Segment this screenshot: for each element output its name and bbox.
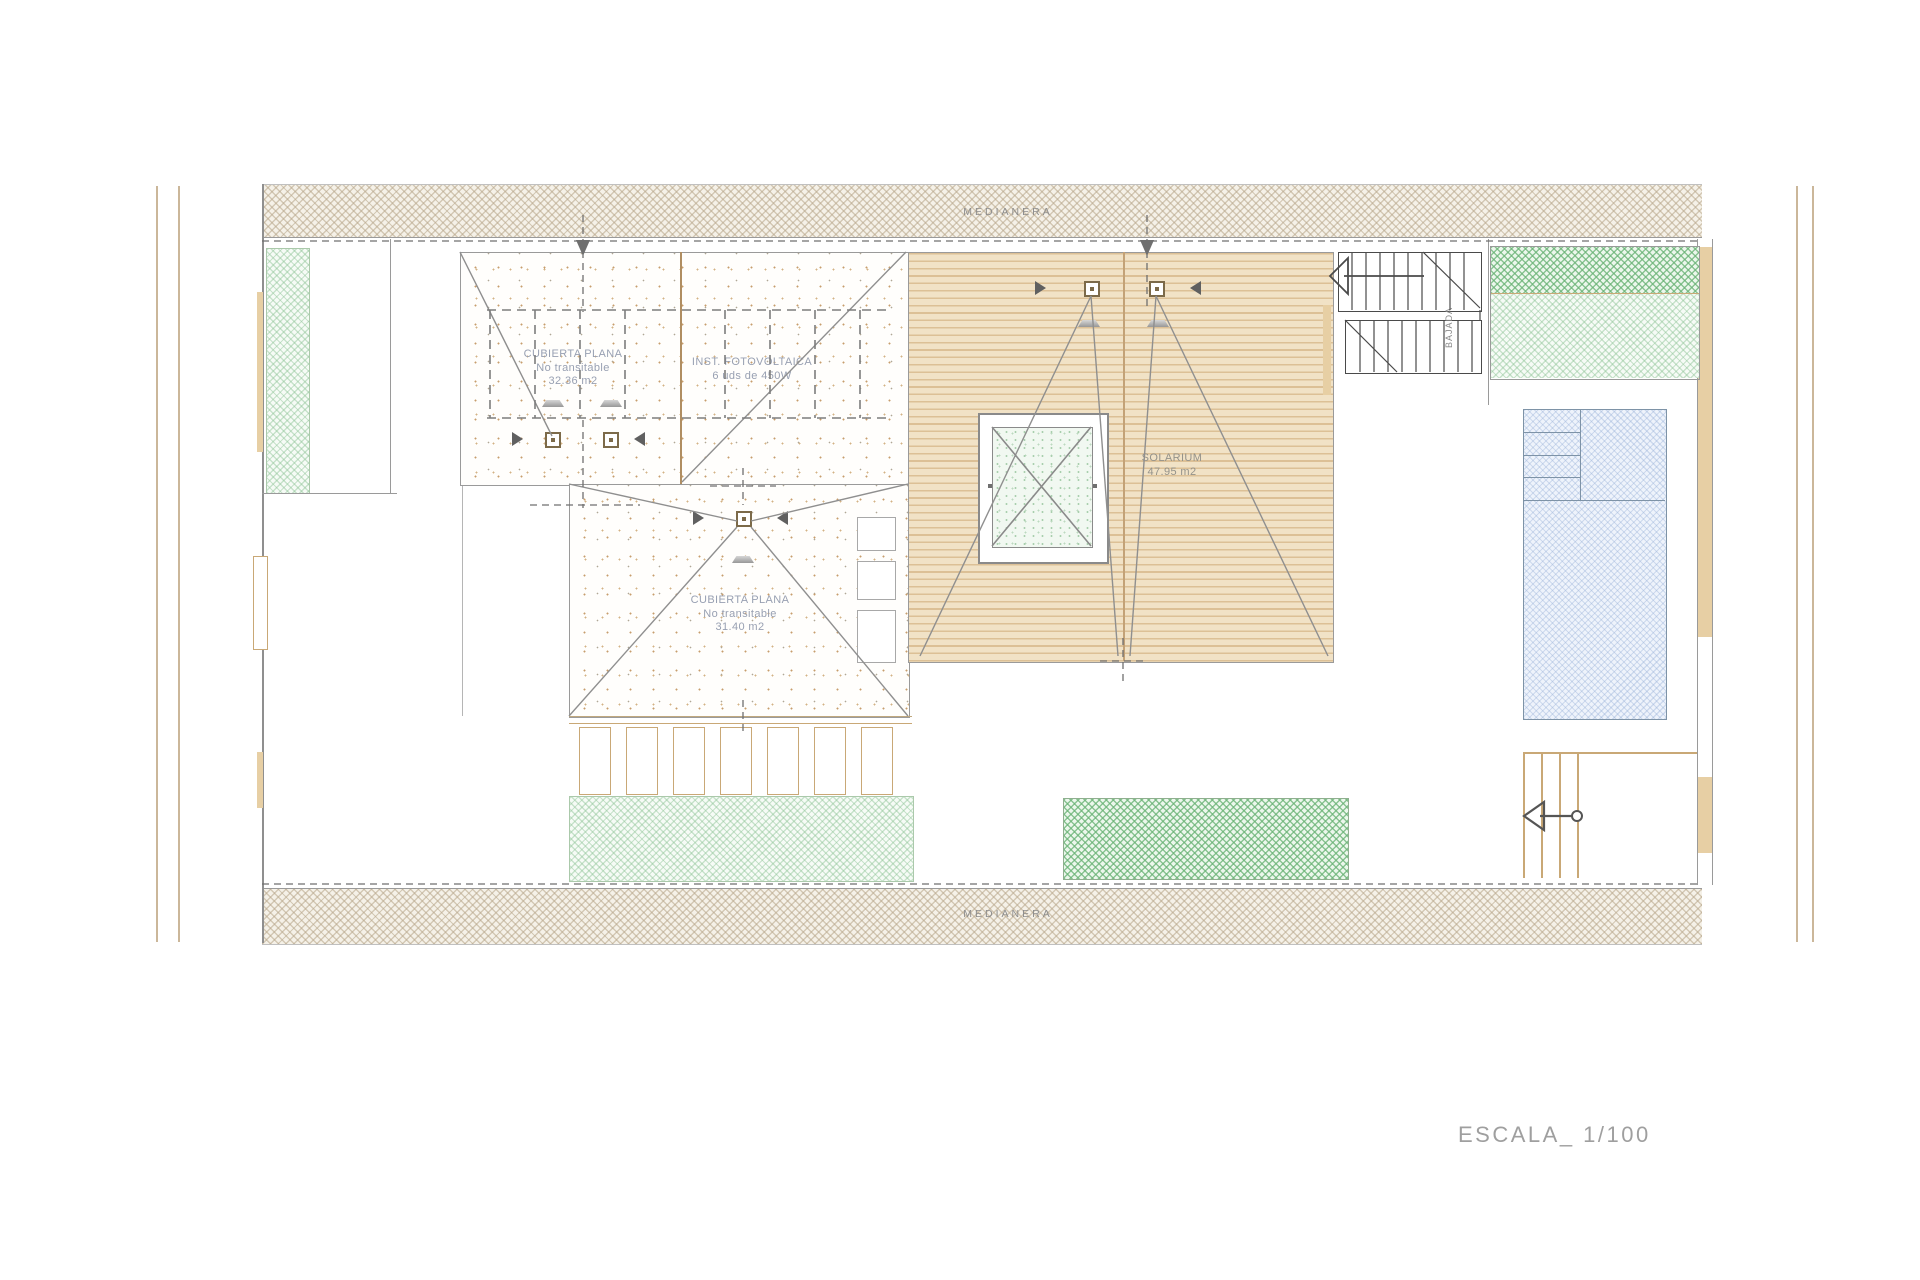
roof-a-drain-arrow-left-icon <box>634 432 645 446</box>
solarium-drain-arrow-left-icon <box>1190 281 1201 295</box>
left-guide-line-inner <box>178 186 180 942</box>
pool-step-side <box>1580 409 1581 500</box>
roof-b-drain-box-icon <box>736 511 752 527</box>
pool-shallow-line <box>1523 500 1665 501</box>
terrace-step-line <box>262 493 397 494</box>
pergola-slat <box>767 727 799 795</box>
pool-step-1 <box>1523 432 1580 433</box>
right-guide-line-inner <box>1796 186 1798 942</box>
party-wall-label-bottom: MEDIANERA <box>908 908 1108 920</box>
right-guide-line-outer <box>1812 186 1814 942</box>
pergola-slat <box>720 727 752 795</box>
pv-label: INST. FOTOVOLTAICA 6 uds de 450W <box>672 356 832 383</box>
ext-stair-tread-3 <box>1559 752 1561 878</box>
roof-a-label-line3: 32.36 m2 <box>493 375 653 389</box>
stair-direction-note: BAJADA <box>1444 307 1454 348</box>
party-wall-label-top: MEDIANERA <box>908 206 1108 218</box>
roof-a-label-line1: CUBIERTA PLANA <box>493 348 653 362</box>
pv-label-line2: 6 uds de 450W <box>672 370 832 384</box>
roof-b-vent-shaft-1 <box>857 517 896 551</box>
ext-stair-top-edge <box>1523 752 1697 754</box>
roof-b-drain-arrow-right-icon <box>693 511 704 525</box>
garden-bed-top-right <box>1490 246 1700 380</box>
right-wall-tan-segment-2 <box>1698 777 1712 853</box>
plot-left-wall-fill-1 <box>257 292 263 452</box>
garden-bed-dense-band <box>1491 247 1699 293</box>
left-guide-line-outer <box>156 186 158 942</box>
pergola <box>569 716 912 797</box>
pergola-inner-line <box>569 723 912 724</box>
solarium-drain-arrow-right-icon <box>1035 281 1046 295</box>
pergola-slat <box>579 727 611 795</box>
building-lower-left-wall <box>462 484 463 716</box>
ext-stair-tread-4 <box>1577 752 1579 878</box>
ext-stair-tread-2 <box>1541 752 1543 878</box>
roof-a-drain-arrow-right-icon <box>512 432 523 446</box>
skylight-dot-left <box>988 484 992 488</box>
solarium-label-line2: 47.95 m2 <box>1102 466 1242 480</box>
solarium-label-line1: SOLARIUM <box>1102 452 1242 466</box>
skylight-inner <box>992 427 1093 548</box>
roof-b-vent-shaft-2 <box>857 561 896 600</box>
pool-step-2 <box>1523 455 1580 456</box>
stair-upper-flight <box>1338 252 1482 312</box>
ext-stair-arrow <box>1524 802 1582 830</box>
solarium-drain-box-2-icon <box>1149 281 1165 297</box>
roof-b-vent-shaft-3 <box>857 610 896 663</box>
right-wall-tan-segment-1 <box>1698 247 1712 637</box>
roof-b-drain-arrow-left-icon <box>777 511 788 525</box>
ext-stair-tread-1 <box>1523 752 1525 878</box>
roof-b-label-line3: 31.40 m2 <box>660 621 820 635</box>
pergola-slat <box>861 727 893 795</box>
roof-a-label: CUBIERTA PLANA No transitable 32.36 m2 <box>493 348 653 389</box>
garden-bed-bottom-center <box>1063 798 1349 880</box>
roof-a-drain-box-2-icon <box>603 432 619 448</box>
pergola-slat <box>673 727 705 795</box>
pool-step-3 <box>1523 477 1580 478</box>
skylight-dot-right <box>1093 484 1097 488</box>
plot-left-wall-post <box>253 556 268 650</box>
garden-strip-below-pergola <box>569 796 914 882</box>
roof-b-label-line2: No transitable <box>660 608 820 622</box>
roof-b-label-line1: CUBIERTA PLANA <box>660 594 820 608</box>
roof-a-drain-box-1-icon <box>545 432 561 448</box>
solarium-label: SOLARIUM 47.95 m2 <box>1102 452 1242 479</box>
stair-lower-flight <box>1345 320 1482 374</box>
building-upper-left-wall <box>390 239 391 493</box>
pv-label-line1: INST. FOTOVOLTAICA <box>672 356 832 370</box>
pergola-slat <box>626 727 658 795</box>
solarium-drain-box-1-icon <box>1084 281 1100 297</box>
pergola-slat <box>814 727 846 795</box>
roof-b-label: CUBIERTA PLANA No transitable 31.40 m2 <box>660 594 820 635</box>
scale-note: ESCALA_ 1/100 <box>1458 1122 1651 1148</box>
floor-plan-page: MEDIANERA MEDIANERA CUBIERTA PLANA No tr… <box>0 0 1920 1280</box>
side-yard-green-strip <box>266 248 310 494</box>
stair-left-wall-fill <box>1323 305 1331 395</box>
roof-a-label-line2: No transitable <box>493 362 653 376</box>
garden-bed-light-band <box>1491 294 1699 378</box>
plot-left-wall-fill-2 <box>257 752 263 808</box>
